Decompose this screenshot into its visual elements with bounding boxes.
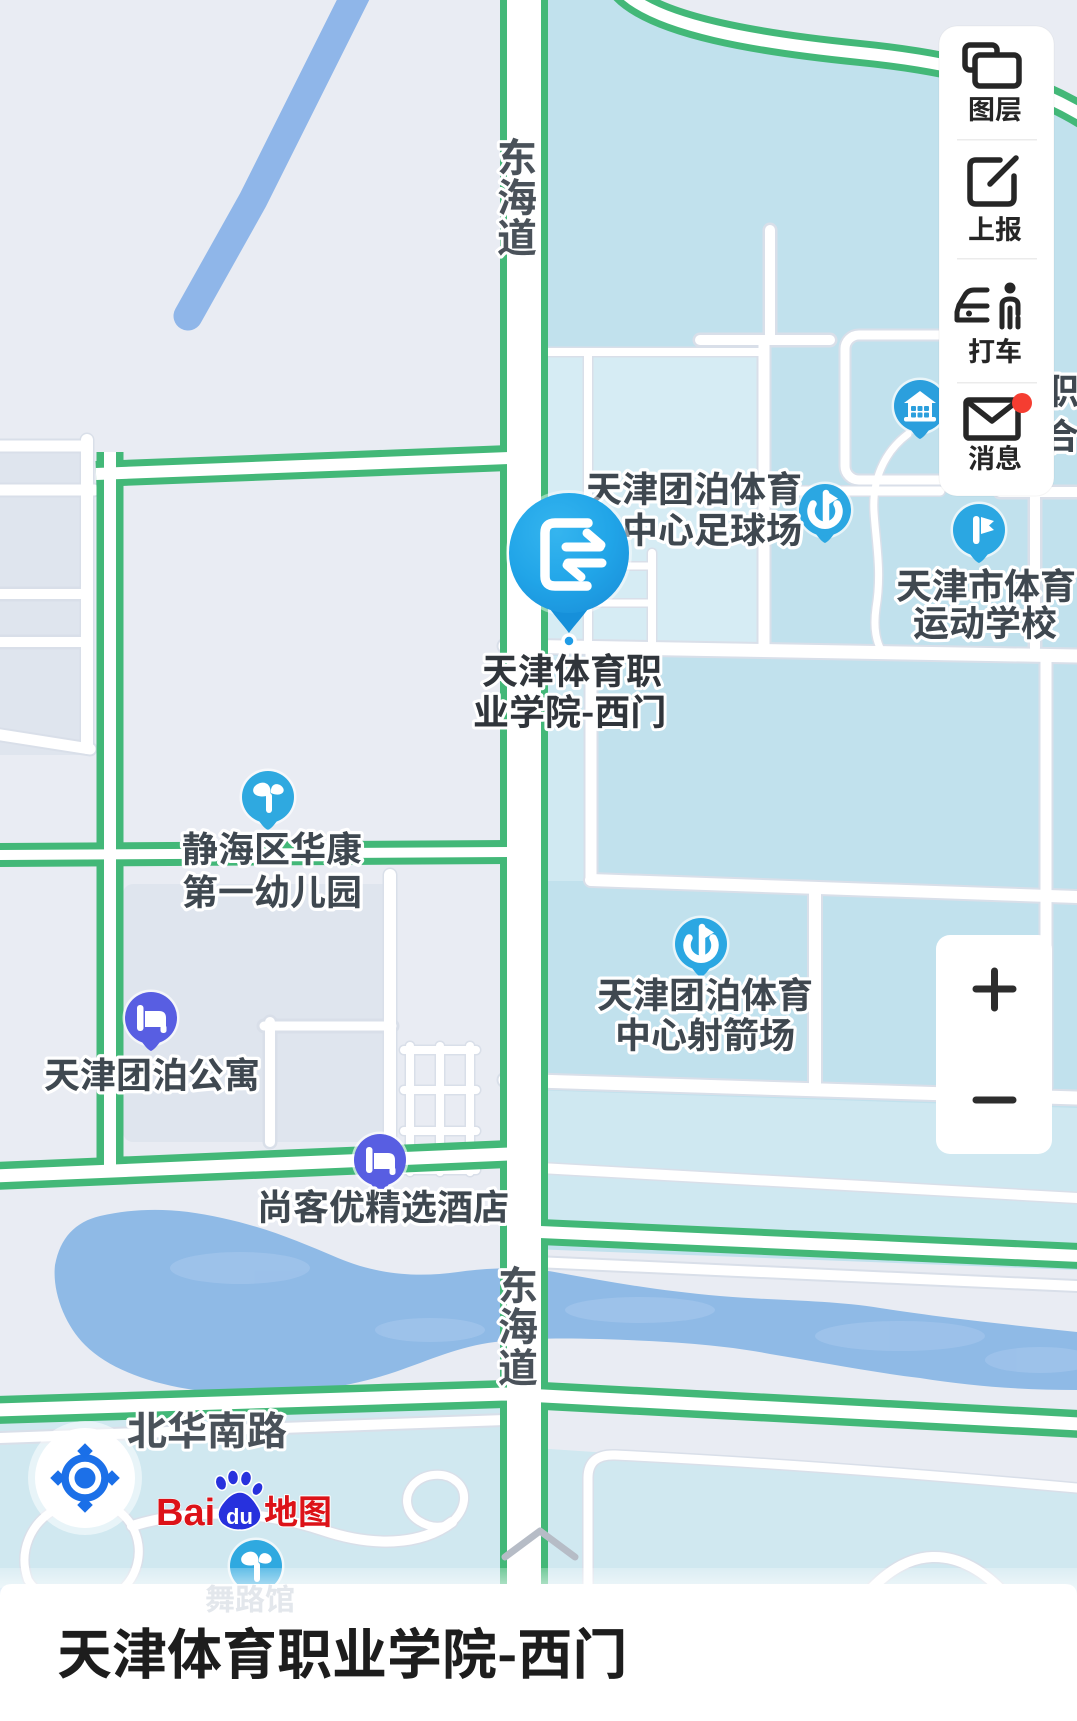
svg-text:Bai: Bai [156, 1492, 215, 1534]
svg-text:du: du [226, 1504, 253, 1529]
